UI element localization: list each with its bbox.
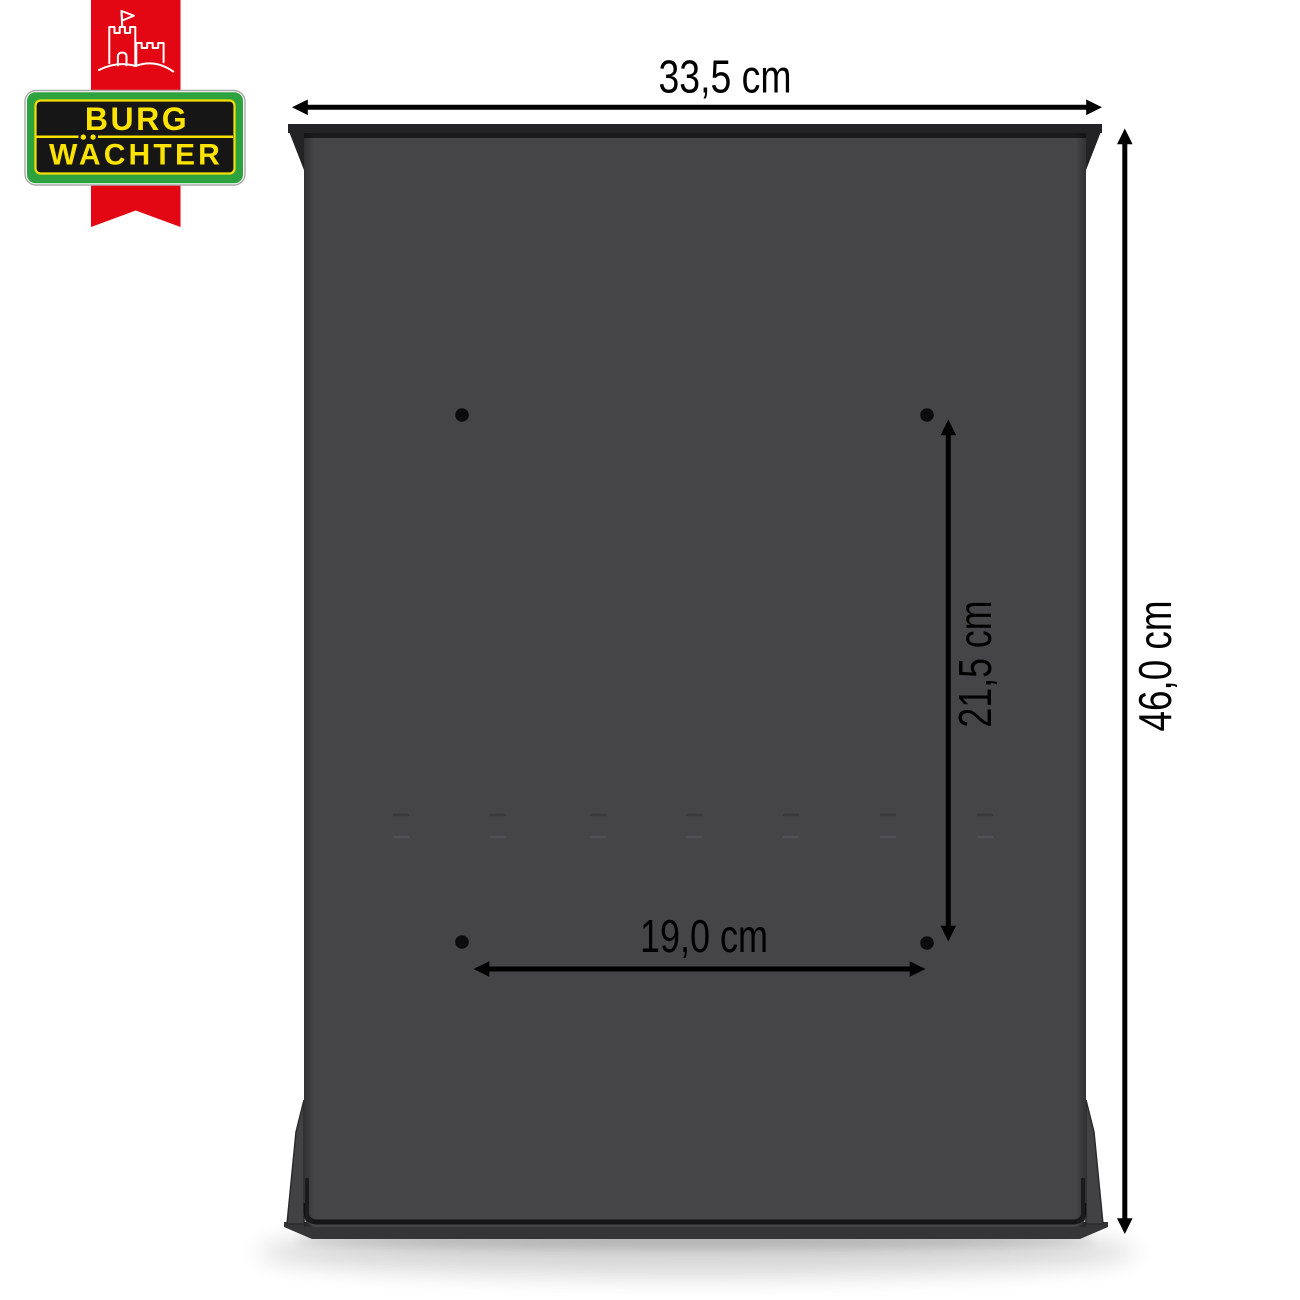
svg-text:21,5 cm: 21,5 cm [949, 601, 1001, 728]
svg-text:WACHTER: WACHTER [49, 139, 223, 172]
svg-text:BURG: BURG [85, 101, 189, 137]
svg-text:19,0 cm: 19,0 cm [640, 910, 768, 962]
svg-text:33,5 cm: 33,5 cm [659, 51, 792, 103]
svg-text:46,0 cm: 46,0 cm [1129, 601, 1181, 732]
